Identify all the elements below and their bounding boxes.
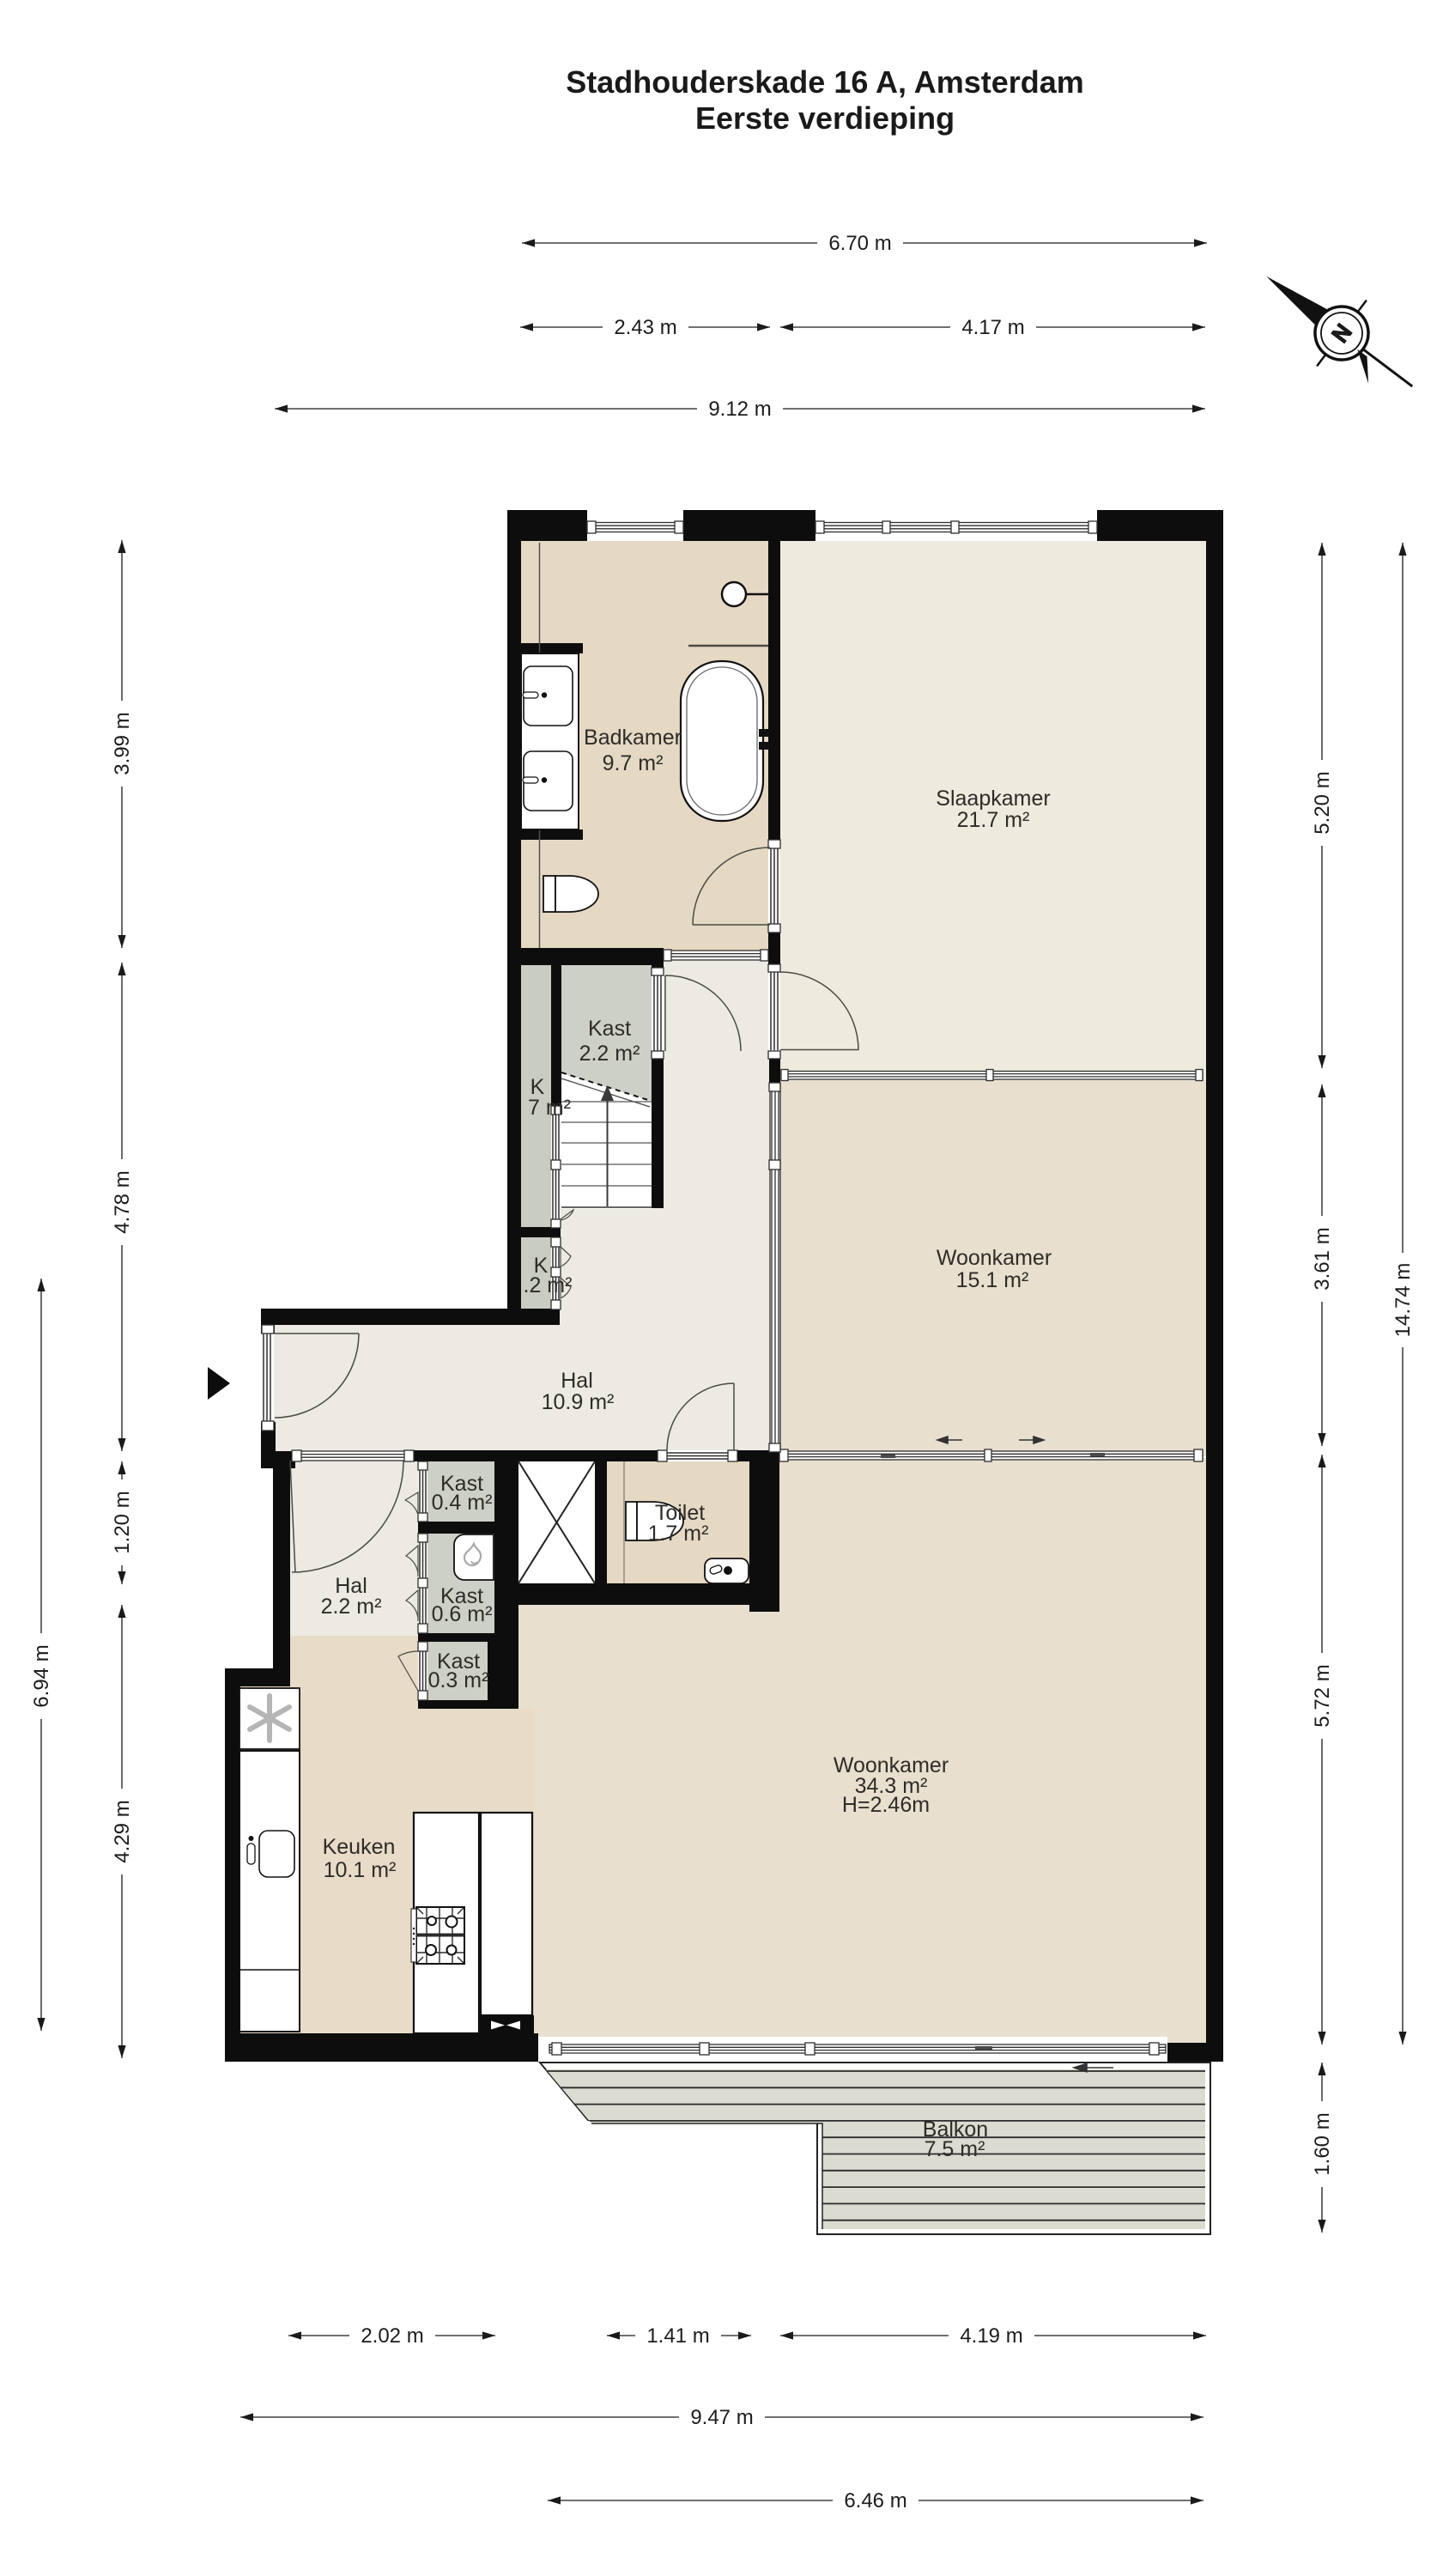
- svg-text:9.7 m²: 9.7 m²: [603, 751, 664, 775]
- svg-text:10.9 m²: 10.9 m²: [542, 1390, 615, 1414]
- svg-text:3.61 m: 3.61 m: [1311, 1227, 1334, 1290]
- svg-text:Keuken: Keuken: [323, 1835, 396, 1859]
- svg-text:4.78 m: 4.78 m: [111, 1170, 134, 1233]
- svg-text:4.17 m: 4.17 m: [961, 316, 1024, 339]
- svg-text:10.1 m²: 10.1 m²: [324, 1858, 397, 1882]
- svg-text:0.4 m²: 0.4 m²: [432, 1491, 493, 1515]
- svg-text:9.47 m: 9.47 m: [690, 2406, 753, 2429]
- svg-text:5.20 m: 5.20 m: [1311, 771, 1334, 834]
- svg-text:1.20 m: 1.20 m: [111, 1491, 134, 1553]
- svg-text:.2 m²: .2 m²: [524, 1273, 573, 1297]
- svg-text:14.74 m: 14.74 m: [1391, 1263, 1415, 1338]
- svg-text:7 m²: 7 m²: [528, 1096, 571, 1120]
- svg-text:1.41 m: 1.41 m: [646, 2324, 709, 2348]
- svg-text:Hal: Hal: [561, 1369, 593, 1393]
- svg-text:2.2 m²: 2.2 m²: [321, 1595, 382, 1619]
- svg-text:2.2 m²: 2.2 m²: [579, 1042, 640, 1066]
- svg-text:4.29 m: 4.29 m: [111, 1800, 134, 1862]
- svg-text:4.19 m: 4.19 m: [960, 2324, 1022, 2348]
- svg-text:Slaapkamer: Slaapkamer: [936, 787, 1050, 811]
- svg-text:6.70 m: 6.70 m: [828, 232, 891, 255]
- svg-text:Eerste verdieping: Eerste verdieping: [695, 100, 955, 136]
- svg-text:1.60 m: 1.60 m: [1311, 2112, 1334, 2175]
- svg-text:5.72 m: 5.72 m: [1311, 1664, 1334, 1727]
- svg-text:9.12 m: 9.12 m: [708, 398, 771, 421]
- svg-text:Kast: Kast: [588, 1017, 631, 1041]
- svg-text:Badkamer: Badkamer: [584, 726, 682, 750]
- svg-text:7.5 m²: 7.5 m²: [925, 2137, 985, 2161]
- svg-text:2.43 m: 2.43 m: [614, 316, 676, 339]
- svg-text:Woonkamer: Woonkamer: [937, 1246, 1052, 1270]
- svg-text:Stadhouderskade 16 A, Amsterda: Stadhouderskade 16 A, Amsterdam: [566, 64, 1084, 100]
- svg-text:0.6 m²: 0.6 m²: [432, 1602, 493, 1626]
- svg-text:2.02 m: 2.02 m: [361, 2324, 423, 2348]
- svg-text:H=2.46m: H=2.46m: [842, 1793, 930, 1817]
- svg-text:0.3 m²: 0.3 m²: [428, 1668, 489, 1692]
- svg-text:15.1 m²: 15.1 m²: [956, 1268, 1029, 1292]
- svg-text:1.7 m²: 1.7 m²: [648, 1522, 709, 1546]
- svg-text:21.7 m²: 21.7 m²: [957, 808, 1030, 832]
- svg-text:6.94 m: 6.94 m: [30, 1644, 53, 1707]
- svg-text:3.99 m: 3.99 m: [111, 712, 134, 775]
- svg-text:6.46 m: 6.46 m: [844, 2489, 906, 2512]
